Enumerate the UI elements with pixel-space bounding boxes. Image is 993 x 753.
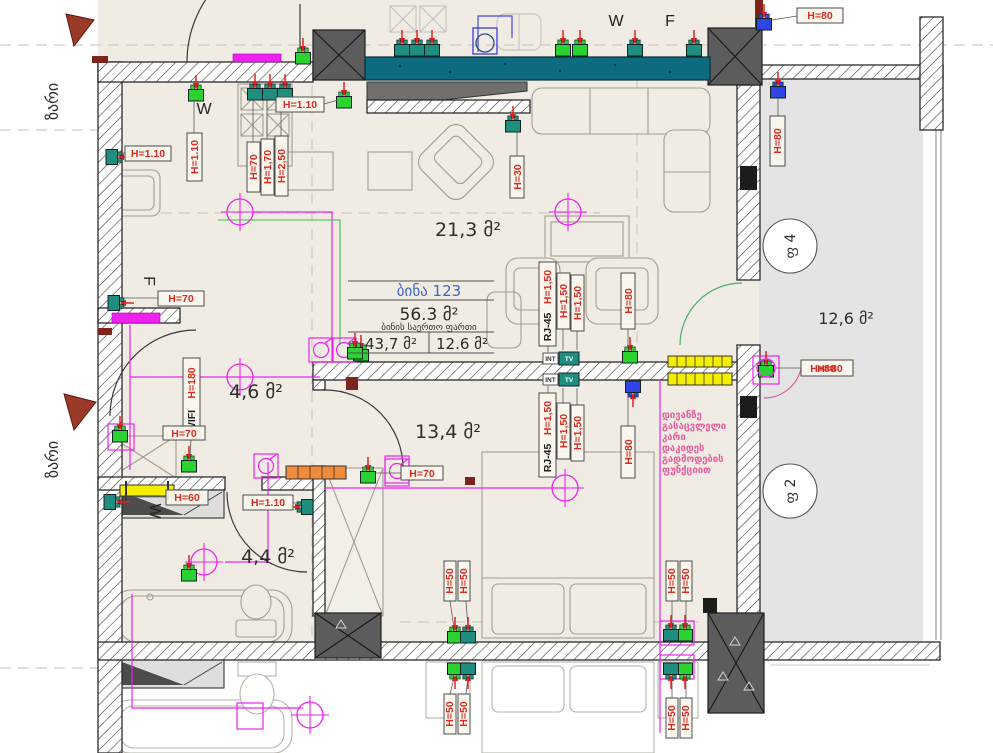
wardrobe [325,468,383,616]
svg-text:H=80: H=80 [623,288,635,314]
svg-text:კარი: კარი [662,432,686,443]
bed [482,452,654,638]
height-label: H=1.10 [243,495,293,510]
svg-text:H=80: H=80 [807,10,833,22]
door-jamb [346,377,358,390]
magenta-strip-light [233,54,281,62]
svg-text:H=80: H=80 [623,439,635,465]
floor-plan-page: INT TV INT TV ზარი ზარი H=1.10 H=1.10 H=… [0,0,993,753]
svg-text:H=1.10: H=1.10 [251,497,285,509]
parapet-band [365,57,710,80]
height-label: H=50 [458,561,470,601]
apartment-total-caption: ბინის საერთო ფართი [381,322,477,333]
height-label: H=50 [680,698,692,738]
svg-text:RJ-45: RJ-45 [542,444,554,473]
door-jamb [92,56,108,63]
height-label: H=50 [444,694,456,734]
column [708,613,764,713]
svg-text:H=180: H=180 [186,367,198,398]
shower-tray-lower [112,656,224,688]
wall-bedroom-west-top [313,380,325,390]
wall-balcony-bottom [760,642,940,660]
svg-text:H=50: H=50 [444,568,456,594]
height-label-overprint: H=80 H=80 [801,360,853,376]
svg-text:H=2,50: H=2,50 [276,149,288,183]
column [315,613,381,658]
window-jamb [740,166,757,190]
wall-outer-right [920,17,943,130]
svg-text:RJ-45: RJ-45 [542,313,554,342]
svg-text:ფ 2: ფ 2 [783,479,799,504]
svg-text:H=1,50: H=1,50 [558,284,570,318]
doorbell-label: ზარი [43,441,62,478]
svg-text:H=1,50: H=1,50 [572,286,584,320]
int-point-label: INT [545,356,556,363]
svg-text:დაკიდეს: დაკიდეს [662,443,704,454]
svg-text:H=50: H=50 [666,705,678,731]
sofa [532,88,710,134]
height-label: H=1,50 [571,275,584,331]
height-label: H=2,50 [275,136,288,196]
svg-text:გადმოდების: გადმოდების [662,454,724,465]
wall-balcony-top [759,65,943,79]
wall-top [98,62,313,82]
wall-balcony-inner [367,100,530,113]
height-label: H=50 [444,561,456,601]
svg-text:H=70: H=70 [409,468,435,480]
svg-text:H=30: H=30 [512,164,524,190]
svg-text:H=1,50: H=1,50 [542,270,554,304]
svg-text:H=1,70: H=1,70 [262,150,274,184]
window-jamb [703,598,717,613]
height-label: H=80 [797,8,843,23]
wall-right-lower [737,345,760,615]
riser-marker: ფ 4 [763,219,817,273]
svg-text:H=1,50: H=1,50 [558,414,570,448]
apartment-number: ბინა 123 [397,282,461,300]
height-label: H=60 [166,490,208,505]
svg-text:H=1,50: H=1,50 [542,401,554,435]
room-area-hall: 4,6 მ² [229,381,283,403]
height-label: H=1.10 [187,133,202,181]
svg-text:H=50: H=50 [458,701,470,727]
window-jamb [740,396,757,418]
svg-text:H=50: H=50 [458,568,470,594]
height-label: H=1,70 [261,139,274,195]
svg-text:H=60: H=60 [174,492,200,504]
svg-text:H=50: H=50 [680,705,692,731]
fridge-marker: F [665,13,675,30]
room-area-bedroom: 13,4 მ² [415,421,481,443]
radiator-orange [286,466,346,479]
svg-text:H=70: H=70 [171,428,197,440]
riser-marker: ფ 2 [763,464,817,518]
toilet-tank [236,620,276,637]
height-label: H=1.10 [125,146,171,161]
height-label: H=30 [510,156,524,198]
svg-text:H=1.10: H=1.10 [131,148,165,160]
height-label: H=1,50 [557,403,570,459]
svg-text:H=50: H=50 [680,568,692,594]
height-label: H=50 [458,694,470,734]
washer-marker: W [196,101,212,118]
svg-text:H=80: H=80 [817,363,843,375]
floor-plan-drawing: INT TV INT TV ზარი ზარი H=1.10 H=1.10 H=… [0,0,993,753]
washer-marker: W [146,503,163,519]
apartment-inner-area: 43,7 მ² [365,335,417,353]
apartment-outer-area: 12.6 მ² [436,335,488,353]
height-label: H=1,50 [557,273,570,329]
height-label: H=50 [680,561,692,601]
column [708,28,762,85]
room-area-balcony: 12,6 მ² [818,309,873,328]
height-label: H=70 [158,291,204,306]
svg-text:H=1,50: H=1,50 [572,416,584,450]
rj45-label: H=1,50 RJ-45 [539,393,556,477]
tv-point-label: TV [565,377,574,384]
door-jamb [465,477,475,485]
sofa-chaise [664,130,710,212]
svg-text:H=50: H=50 [666,568,678,594]
rj45-label: H=1,50 RJ-45 [539,262,556,346]
height-label: H=80 [621,426,635,478]
svg-text:გასაცვლელი: გასაცვლელი [662,421,726,432]
washer-marker: W [608,13,624,30]
height-label: H=1,50 [571,405,584,461]
svg-text:ფ 4: ფ 4 [783,233,799,258]
room-area-living: 21,3 მ² [435,219,501,241]
doorbell-label: ზარი [43,83,62,120]
height-label: H=50 [666,698,678,738]
int-point-label: INT [545,377,556,384]
svg-text:H=1.10: H=1.10 [283,99,317,111]
fridge-marker: F [140,276,157,286]
svg-text:დივანზე: დივანზე [662,410,702,421]
height-label: H=1.10 [276,97,324,112]
tv-point-label: TV [565,356,574,363]
upper-right-exterior [760,0,993,64]
column [313,30,365,80]
toilet-bowl [241,585,271,619]
svg-text:H=80: H=80 [772,128,784,154]
height-label: H=80 [770,116,785,166]
room-area-bathroom: 4,4 მ² [241,546,295,568]
height-label: H=70 [163,426,205,440]
door-jamb [98,328,112,335]
svg-text:ფუნქციით: ფუნქციით [662,465,711,476]
apartment-total-area: 56.3 მ² [400,305,459,325]
height-label: H=80 [621,273,635,329]
height-label: H=70 [247,142,260,192]
svg-text:H=70: H=70 [248,154,260,180]
svg-text:H=70: H=70 [168,293,194,305]
svg-text:H=50: H=50 [444,701,456,727]
svg-text:H=1.10: H=1.10 [189,140,201,174]
wall-bedroom-west [313,466,325,616]
height-label: H=50 [666,561,678,601]
magenta-strip-light [112,313,160,323]
height-label: H=70 [401,466,443,480]
